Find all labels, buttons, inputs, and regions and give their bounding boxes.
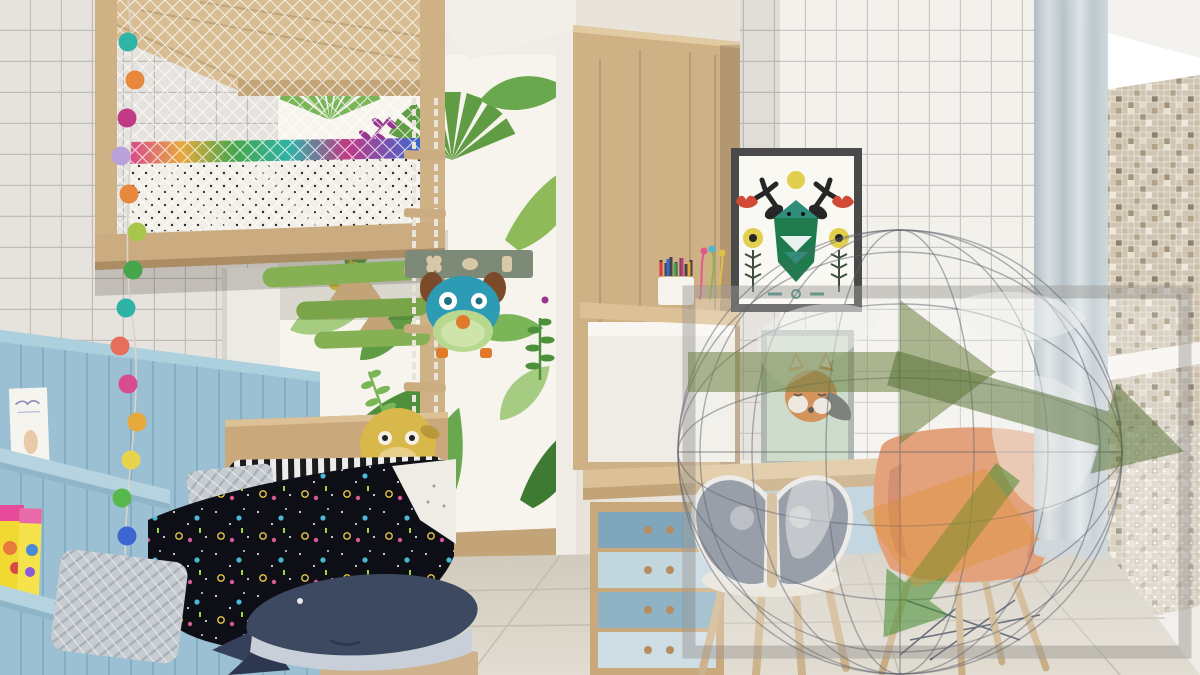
bedroom-render [0,0,1200,675]
pompom [113,489,132,508]
pompom [118,109,137,128]
pompom [122,451,141,470]
safety-net [117,0,420,244]
comic-books [0,505,42,597]
pompom [119,375,138,394]
pompom [126,71,145,90]
storybook [9,387,50,462]
loft-post-left [95,0,117,268]
pompom [112,147,131,166]
pompom [128,413,147,432]
pompom [120,185,139,204]
pompom [111,337,130,356]
pompom [119,33,138,52]
pompom [118,527,137,546]
pompom [128,223,147,242]
pompom [124,261,143,280]
pompom [117,299,136,318]
knit-pillow-large [50,548,189,665]
watermark [678,230,1197,674]
